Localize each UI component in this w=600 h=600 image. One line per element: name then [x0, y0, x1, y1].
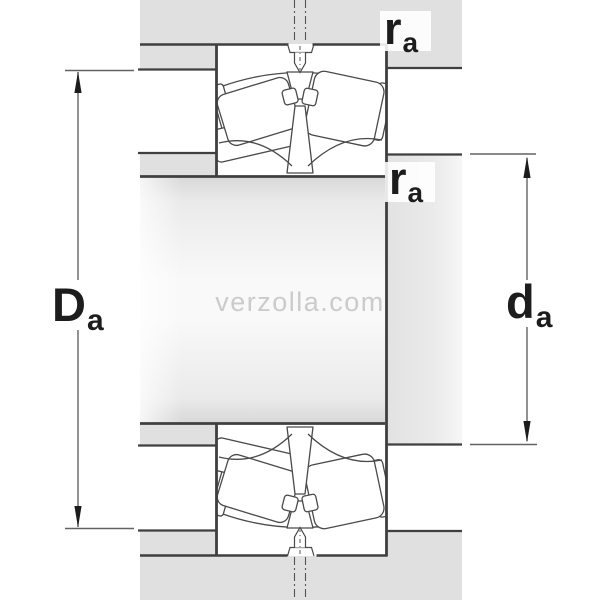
watermark: verzolla.com	[215, 287, 385, 317]
shaft-shoulder-section-bottom-left	[140, 423, 217, 446]
arrow-up	[74, 72, 81, 94]
diagram-canvas: verzolla.com	[0, 0, 600, 600]
arrow-up	[523, 157, 530, 179]
dimension-da: da	[470, 154, 553, 445]
dimension-label-Da: Da	[52, 278, 104, 337]
arrow-down	[523, 421, 530, 443]
shaft-cylinder-left-highlight	[140, 177, 182, 423]
dimension-label-da: da	[506, 275, 553, 334]
dimension-Da: Da	[52, 71, 134, 529]
arrow-down	[74, 506, 81, 528]
bearing-diagram: verzolla.com	[0, 0, 600, 600]
shaft-shoulder-section-top-left	[140, 154, 217, 177]
